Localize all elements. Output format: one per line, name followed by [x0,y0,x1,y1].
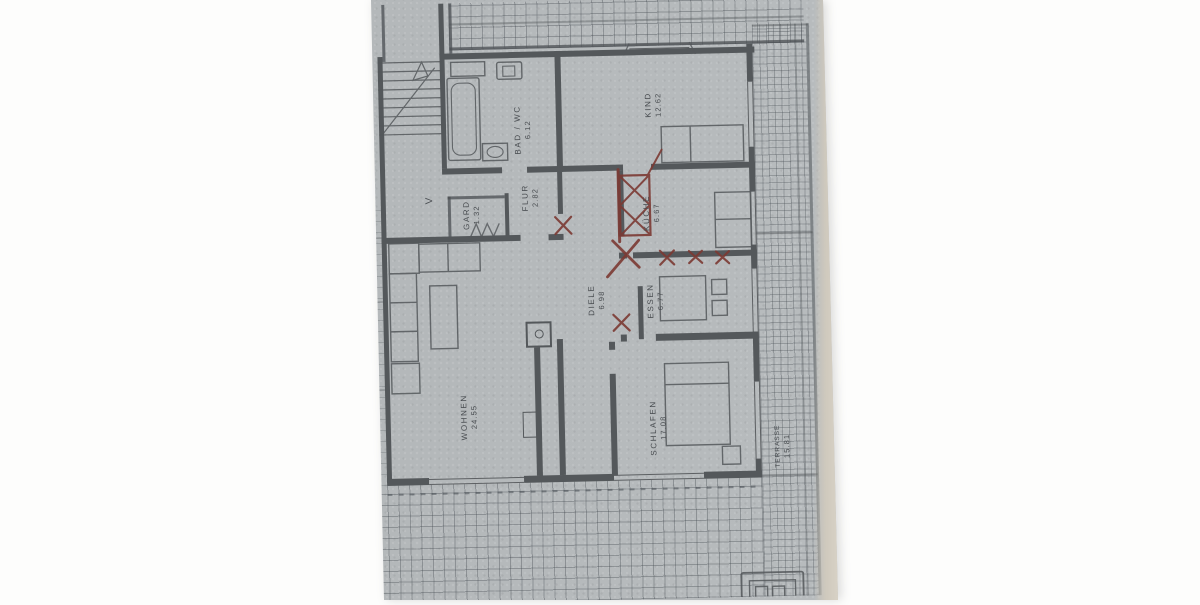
kitchen-counter [715,192,752,248]
toilet [497,62,522,80]
room-label-flur: FLUR 2.82 [520,184,541,212]
living-furniture [389,242,483,394]
room-name: BAD / WC [512,105,524,154]
wall-segment [656,332,759,341]
room-area: 6.77 [656,291,666,310]
nightstand [722,446,740,464]
room-area: 6.98 [597,290,607,309]
wall-segment [753,332,760,382]
paper-right-edge [814,0,840,600]
room-area: 15.81 [782,434,792,458]
room-name: FLUR [520,184,531,212]
wall-segment [617,171,624,237]
room-area: 17.08 [659,415,669,439]
dining-furniture [659,275,727,321]
wall-niche-box [523,412,540,438]
room-name: DIELE [587,285,598,316]
wall-segment [442,167,502,174]
room-area: 6.12 [523,120,533,139]
room-name: WOHNEN [459,394,470,440]
room-label-kind: KIND 12.62 [643,92,664,118]
room-area: 6.67 [652,203,662,222]
wall-segment [505,193,510,238]
room-label-terrasse: TERRASSE 15.81 [774,424,793,467]
wall-segment [749,147,756,192]
floor-plan-drawing: KIND 12.62 BAD / WC 6.12 FLUR 2.82 GARD … [365,0,844,605]
coffee-table [430,285,458,349]
room-area: 2.82 [531,188,541,207]
wall-segment [751,245,758,269]
wall-segment [438,4,447,169]
kind-bed [661,125,744,163]
wall-segment [633,250,757,259]
stairwell-top-line [381,5,385,62]
wall-segment [554,51,563,172]
room-name: SCHLAFEN [648,400,660,456]
room-area: 1.32 [472,205,482,224]
room-label-bad-wc: BAD / WC 6.12 [512,105,533,155]
room-label-schlafen: SCHLAFEN 17.08 [648,400,669,456]
wall-segment [651,162,755,170]
wall-segment [448,195,505,199]
wall-segment [387,478,429,486]
room-name: KÜCHE [642,195,653,231]
wall-segment [448,196,452,239]
wall-segment [610,374,618,476]
bedroom-furniture [664,362,740,466]
photo-of-floor-plan: { "rooms": { "kind": {"name":"KIND", "ar… [0,0,1200,600]
room-name: GARD [462,200,473,230]
staircase [378,62,444,135]
stair-v-mark: V [424,197,435,204]
red-x [613,314,629,330]
room-label-gard: GARD 1.32 [462,200,483,230]
bathtub [447,78,481,161]
room-area: 12.62 [654,92,664,116]
wall-segment [557,172,563,214]
wall-segment [746,44,753,82]
wall-segment [382,235,521,244]
window-symbol [750,192,757,245]
floor-plan-paper: KIND 12.62 BAD / WC 6.12 FLUR 2.82 GARD … [0,0,1200,600]
wall-segment [621,335,627,342]
room-label-kueche: KÜCHE 6.67 [642,195,663,231]
red-x [555,217,571,234]
room-label-diele: DIELE 6.98 [587,284,608,316]
dining-table [659,276,706,321]
room-name: ESSEN [646,283,657,318]
room-area: 24.55 [470,405,480,429]
wall-segment [527,165,623,173]
wall-segment [548,234,563,240]
wall-segment [619,252,627,258]
room-label-essen: ESSEN 6.77 [646,283,667,319]
washbasin [482,143,507,161]
stair-direction-arrow [413,62,428,80]
lower-terrace-grid [376,477,765,605]
wall-segment [704,470,762,478]
room-label-wohnen: WOHNEN 24.55 [459,394,480,440]
double-bed [664,362,730,445]
bath-cabinet [451,62,485,77]
chimney-wall [557,339,566,475]
paper-shadow: KIND 12.62 BAD / WC 6.12 FLUR 2.82 GARD … [0,0,1200,600]
room-name: KIND [643,92,654,118]
wall-segment [609,342,615,350]
wall-segment [638,286,644,339]
